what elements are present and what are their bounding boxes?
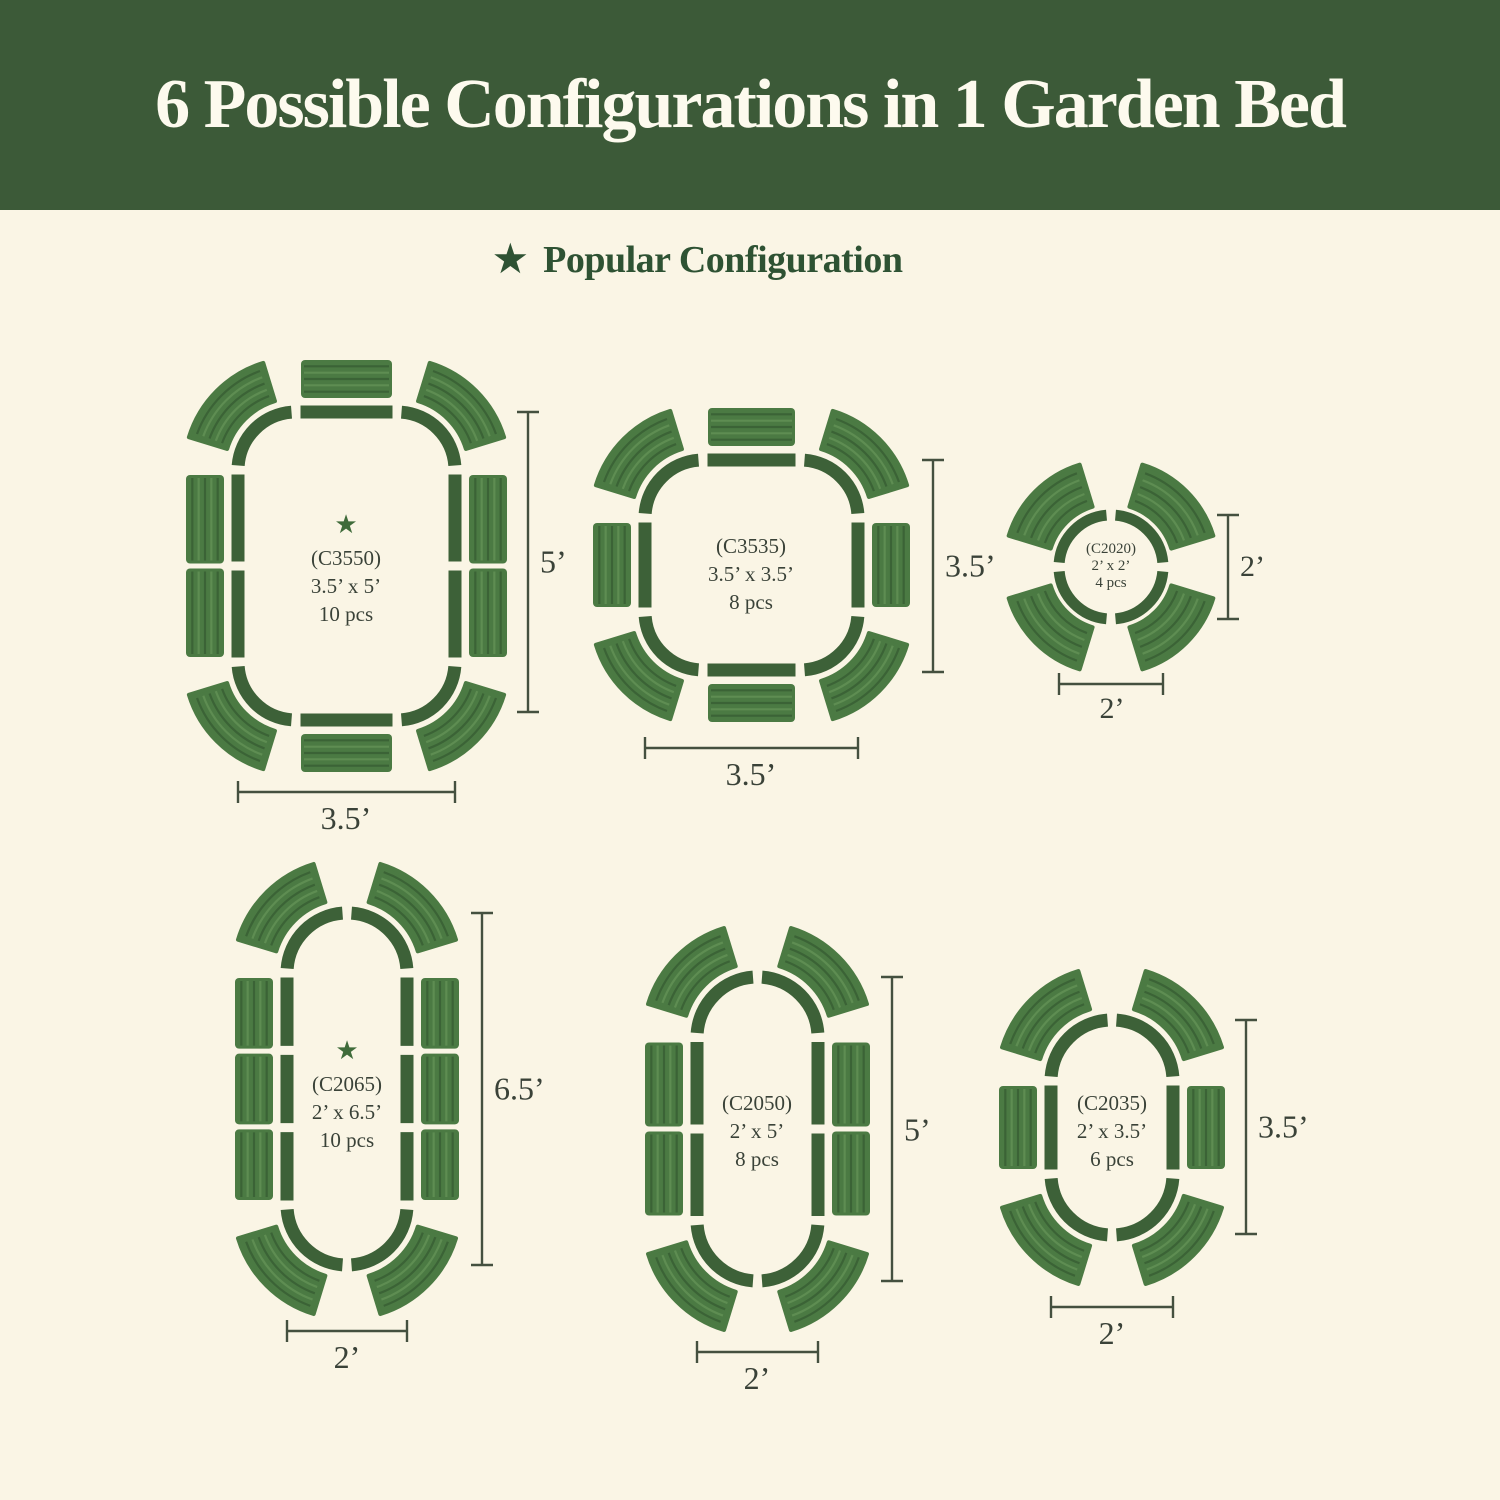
dim-height-c2035: 3.5’ xyxy=(1258,1109,1309,1146)
dim-height-c2050: 5’ xyxy=(904,1112,931,1149)
popular-star-icon: ★ xyxy=(311,510,381,540)
config-code: (C3535) xyxy=(708,532,794,560)
dim-width-c2050: 2’ xyxy=(744,1360,771,1397)
config-pieces: 10 pcs xyxy=(312,1126,382,1154)
garden-bed-infographic: 6 Possible Configurations in 1 Garden Be… xyxy=(0,0,1500,1500)
config-code: (C3550) xyxy=(311,544,381,572)
config-size: 2’ x 2’ xyxy=(1086,558,1136,575)
configurations-diagram xyxy=(0,0,1500,1500)
config-info-c2065: ★ (C2065) 2’ x 6.5’ 10 pcs xyxy=(312,1036,382,1154)
config-pieces: 8 pcs xyxy=(708,588,794,616)
config-size: 2’ x 5’ xyxy=(722,1117,792,1145)
dim-width-c2020: 2’ xyxy=(1100,692,1125,726)
popular-star-icon: ★ xyxy=(312,1036,382,1066)
config-code: (C2035) xyxy=(1077,1089,1147,1117)
config-size: 3.5’ x 5’ xyxy=(311,572,381,600)
config-info-c2050: (C2050) 2’ x 5’ 8 pcs xyxy=(722,1089,792,1173)
dim-width-c3535: 3.5’ xyxy=(726,756,777,793)
config-info-c2020: (C2020) 2’ x 2’ 4 pcs xyxy=(1086,541,1136,592)
config-size: 3.5’ x 3.5’ xyxy=(708,560,794,588)
dim-width-c2065: 2’ xyxy=(334,1339,361,1376)
dim-height-c3550: 5’ xyxy=(540,544,567,581)
config-pieces: 10 pcs xyxy=(311,600,381,628)
config-size: 2’ x 3.5’ xyxy=(1077,1117,1147,1145)
config-info-c3535: (C3535) 3.5’ x 3.5’ 8 pcs xyxy=(708,532,794,616)
config-pieces: 8 pcs xyxy=(722,1145,792,1173)
config-info-c2035: (C2035) 2’ x 3.5’ 6 pcs xyxy=(1077,1089,1147,1173)
config-info-c3550: ★ (C3550) 3.5’ x 5’ 10 pcs xyxy=(311,510,381,628)
config-code: (C2050) xyxy=(722,1089,792,1117)
dim-height-c3535: 3.5’ xyxy=(945,548,996,585)
dim-width-c3550: 3.5’ xyxy=(321,800,372,837)
config-pieces: 4 pcs xyxy=(1086,575,1136,592)
config-size: 2’ x 6.5’ xyxy=(312,1098,382,1126)
dim-height-c2065: 6.5’ xyxy=(494,1071,545,1108)
config-code: (C2065) xyxy=(312,1070,382,1098)
dim-height-c2020: 2’ xyxy=(1240,550,1265,584)
config-pieces: 6 pcs xyxy=(1077,1145,1147,1173)
dim-width-c2035: 2’ xyxy=(1099,1315,1126,1352)
config-code: (C2020) xyxy=(1086,541,1136,558)
